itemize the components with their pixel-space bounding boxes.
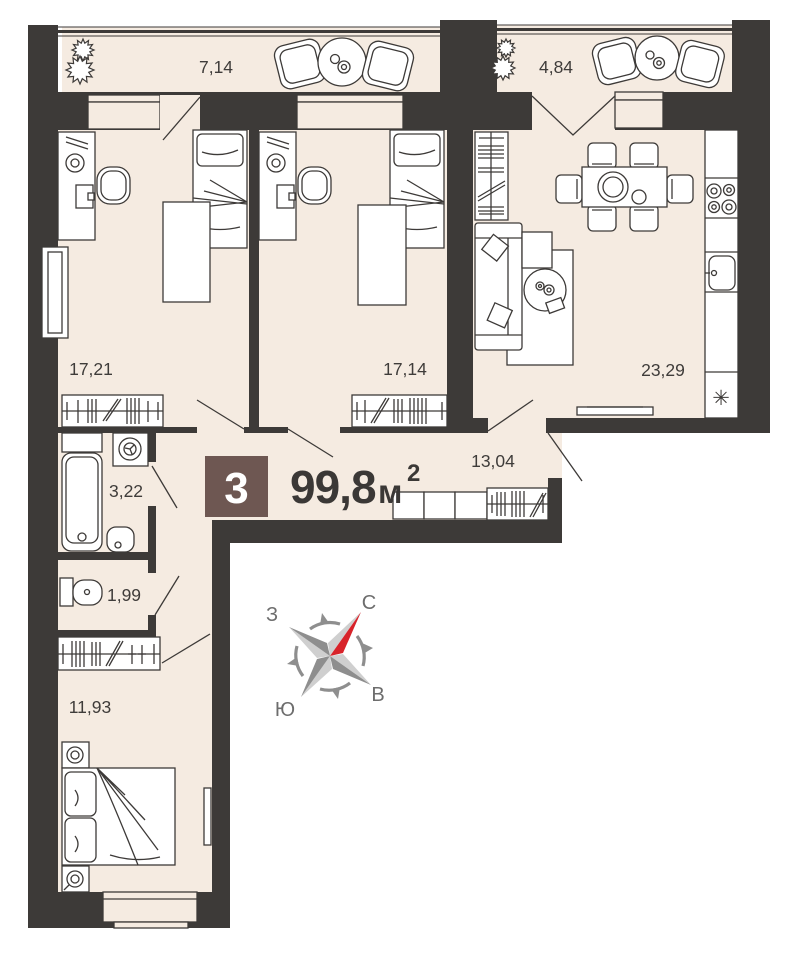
kitchen-sink-icon: [705, 256, 735, 290]
floor-plan: ✳: [0, 0, 800, 957]
shelving-unit-icon: [475, 132, 508, 220]
area-label-bedroom-2: 17,14: [383, 359, 427, 379]
desk-chair-icon: [298, 167, 331, 204]
area-label-toilet: 1,99: [107, 585, 141, 605]
wardrobe-icon: [352, 395, 447, 427]
wardrobe-icon: [62, 395, 163, 427]
chair-icon: [588, 205, 616, 231]
nightstand-icon: [62, 742, 89, 768]
wardrobe-icon: [487, 488, 548, 520]
double-bed-icon: [62, 768, 175, 865]
chair-icon: [556, 175, 582, 203]
desk-chair-icon: [97, 167, 130, 204]
rug-icon: [358, 205, 406, 305]
coffee-table-icon: [318, 38, 366, 86]
kitchen-window-icon: [615, 92, 663, 128]
area-label-bedroom-1: 17,21: [69, 359, 113, 379]
chair-icon: [630, 143, 658, 169]
total-area-value: 99,8: [290, 461, 376, 513]
rug-icon: [163, 202, 210, 302]
hallway-furniture: [393, 488, 548, 520]
compass-west-label: З: [266, 604, 278, 626]
cabinet-icon: [424, 492, 455, 519]
cabinet-icon: [455, 492, 487, 519]
bedroom-1-side-window-icon: [42, 247, 68, 338]
compass-east-label: В: [371, 684, 384, 706]
bedroom-2-window-icon: [297, 95, 403, 129]
washing-machine-icon: [113, 433, 148, 466]
tv-icon: [577, 407, 653, 415]
sink-symbol: ✳: [712, 387, 730, 410]
desk-icon: [259, 132, 296, 240]
area-label-balcony-left: 7,14: [199, 57, 233, 77]
desk-icon: [58, 132, 95, 240]
area-label-bathroom: 3,22: [109, 481, 143, 501]
area-label-bedroom-3: 11,93: [69, 697, 112, 717]
bathtub-icon: [62, 453, 102, 551]
bathroom-sink-icon: [107, 527, 134, 552]
shelf-icon: [62, 433, 102, 452]
total-area-sup: 2: [407, 460, 420, 487]
chair-icon: [667, 175, 693, 203]
area-label-hallway: 13,04: [471, 451, 515, 471]
sofa-icon: [475, 223, 522, 350]
area-label-balcony-right: 4,84: [539, 57, 573, 77]
kitchen-counter-icon: ✳: [705, 130, 738, 418]
tv-icon: [204, 788, 211, 845]
rooms-count-label: 3: [224, 464, 248, 513]
compass-rose-icon: С З В Ю: [266, 592, 385, 721]
side-table-icon: [522, 232, 552, 268]
bedroom-1-window-icon: [88, 95, 160, 129]
compass-south-label: Ю: [275, 699, 295, 721]
coffee-table-icon: [635, 36, 679, 80]
nightstand-icon: [62, 866, 89, 892]
floor-plan-page: ✳: [0, 0, 800, 957]
compass-north-label: С: [362, 592, 376, 614]
wardrobe-icon: [58, 637, 160, 670]
toilet-icon: [60, 578, 102, 606]
kitchen-french-door-icon: [532, 92, 615, 135]
area-label-kitchen-living: 23,29: [641, 360, 685, 380]
chair-icon: [630, 205, 658, 231]
chair-icon: [588, 143, 616, 169]
total-area-unit: м: [378, 473, 402, 510]
bedroom-3-window-icon: [103, 892, 197, 928]
